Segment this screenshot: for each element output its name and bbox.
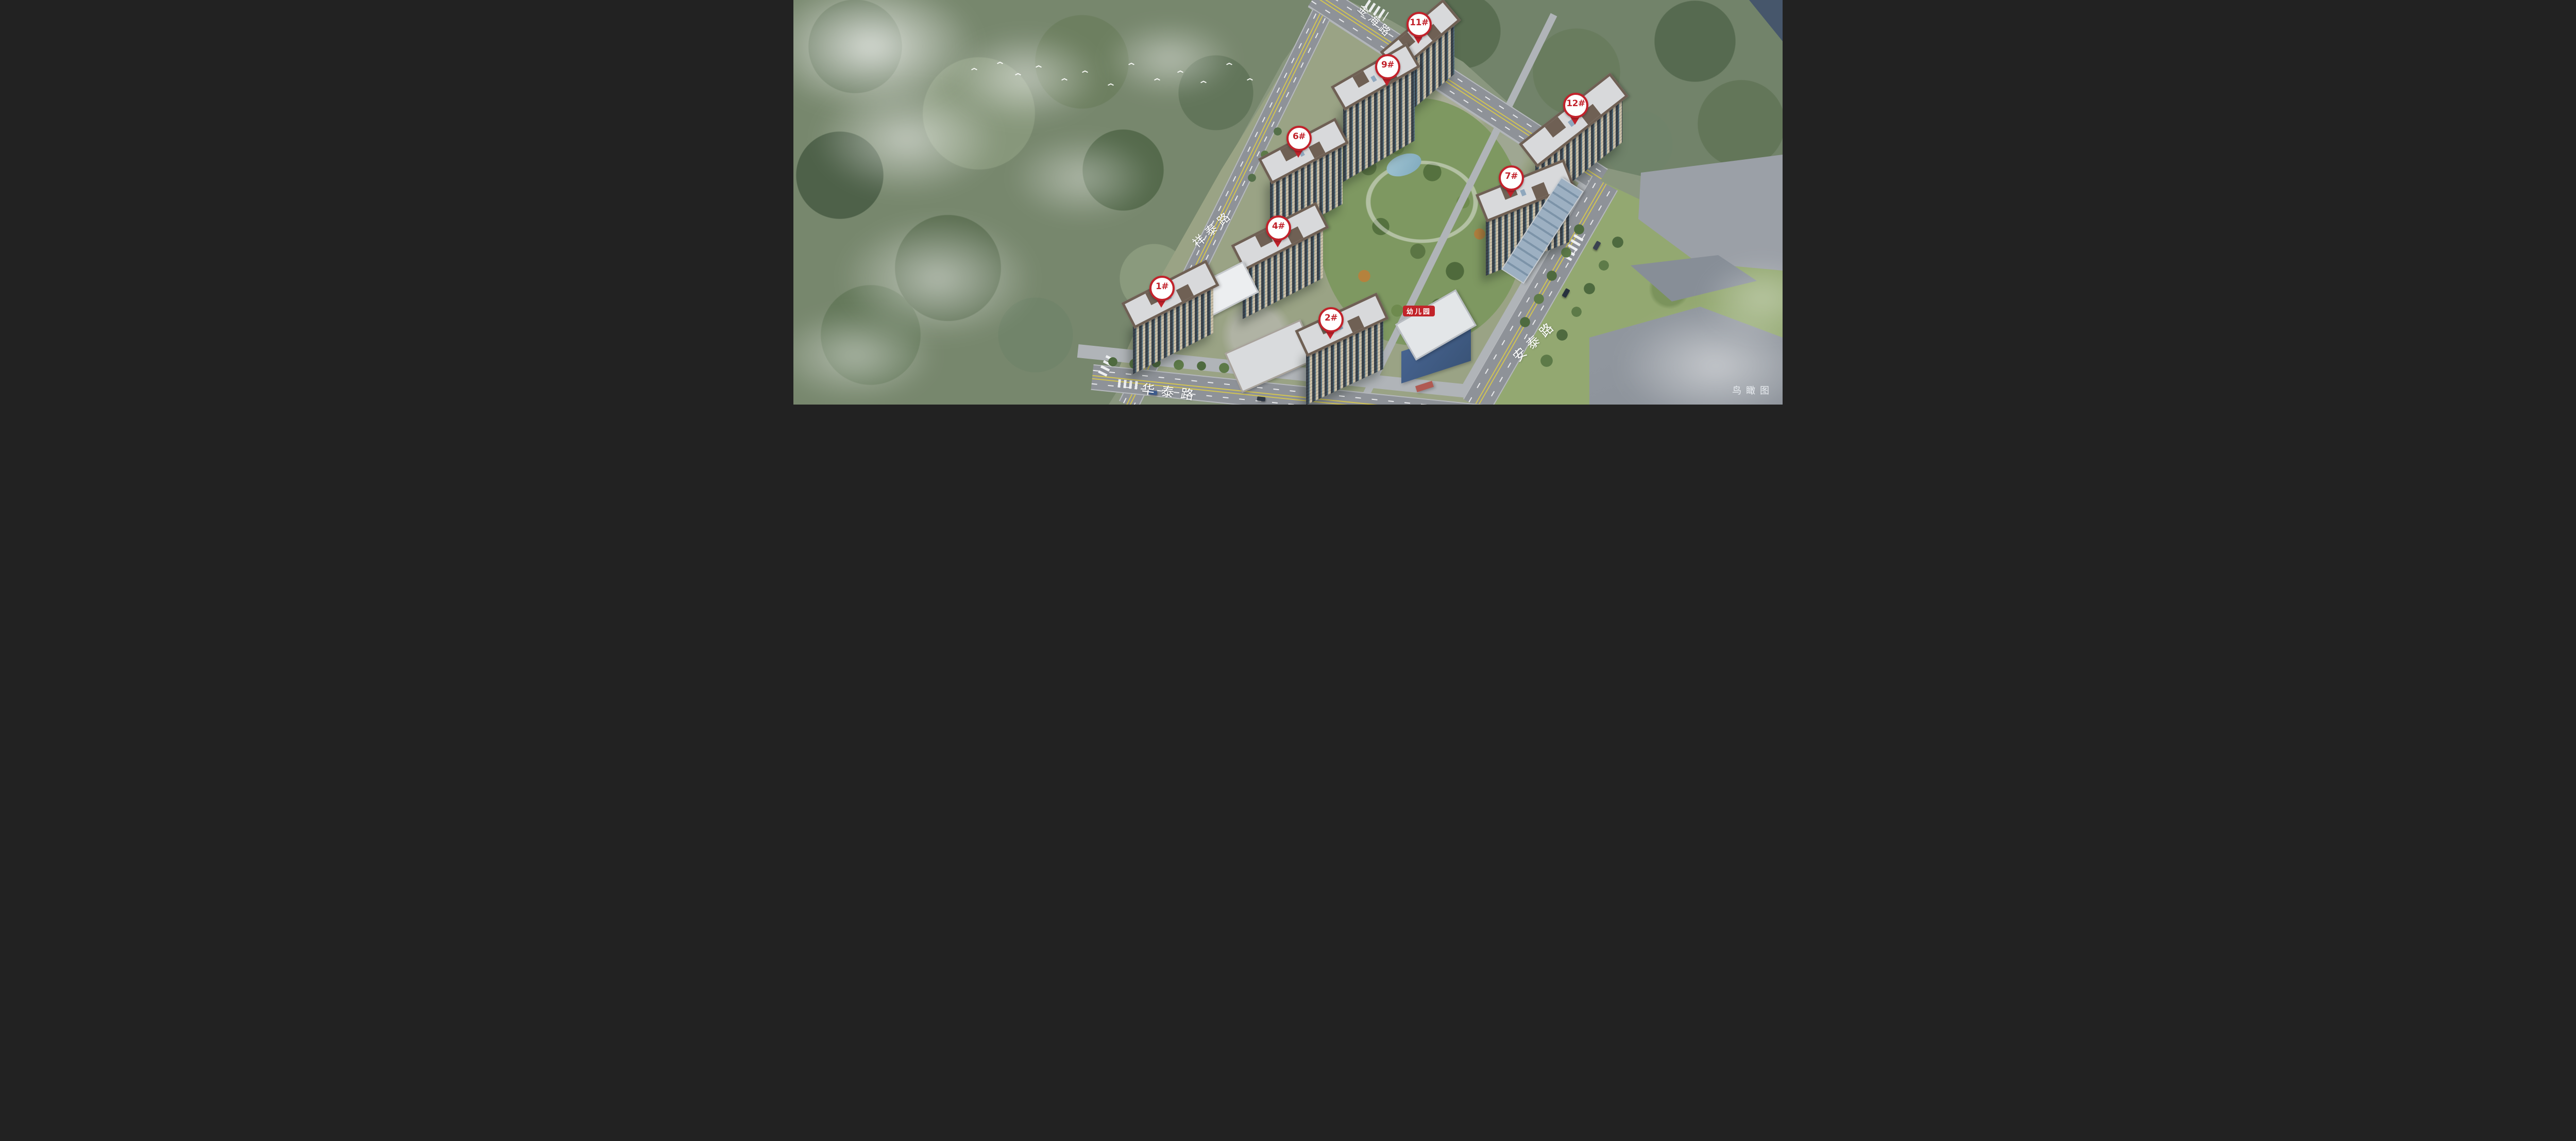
kindergarten-label: 幼儿园 — [1403, 306, 1435, 316]
birdseye-rendering: 金海路 祥泰路 安泰路 华泰路 幼儿园 1# 2# 4# 6# 7# 9# 11… — [793, 0, 1783, 405]
car — [1257, 396, 1266, 401]
pin-circle: 9# — [1375, 54, 1400, 79]
building-pin-6[interactable]: 6# — [1286, 126, 1310, 158]
pin-circle: 12# — [1563, 93, 1588, 118]
pin-circle: 6# — [1286, 126, 1312, 151]
building-pin-7[interactable]: 7# — [1499, 165, 1522, 197]
image-caption: 鸟瞰图 — [1732, 383, 1774, 397]
building-pin-4[interactable]: 4# — [1266, 215, 1290, 247]
building-pin-11[interactable]: 11# — [1406, 12, 1430, 44]
building-pin-12[interactable]: 12# — [1563, 93, 1587, 125]
building-pin-9[interactable]: 9# — [1375, 54, 1399, 86]
pin-circle: 7# — [1499, 165, 1524, 191]
building-pin-2[interactable]: 2# — [1318, 307, 1342, 339]
pin-circle: 11# — [1406, 12, 1432, 37]
kindergarten-label-text: 幼儿园 — [1406, 306, 1431, 316]
road-name: 华泰路 — [1141, 382, 1201, 404]
building-pin-1[interactable]: 1# — [1149, 276, 1173, 308]
pin-circle: 2# — [1318, 307, 1344, 332]
pin-circle: 1# — [1149, 276, 1175, 301]
pin-circle: 4# — [1266, 215, 1291, 241]
